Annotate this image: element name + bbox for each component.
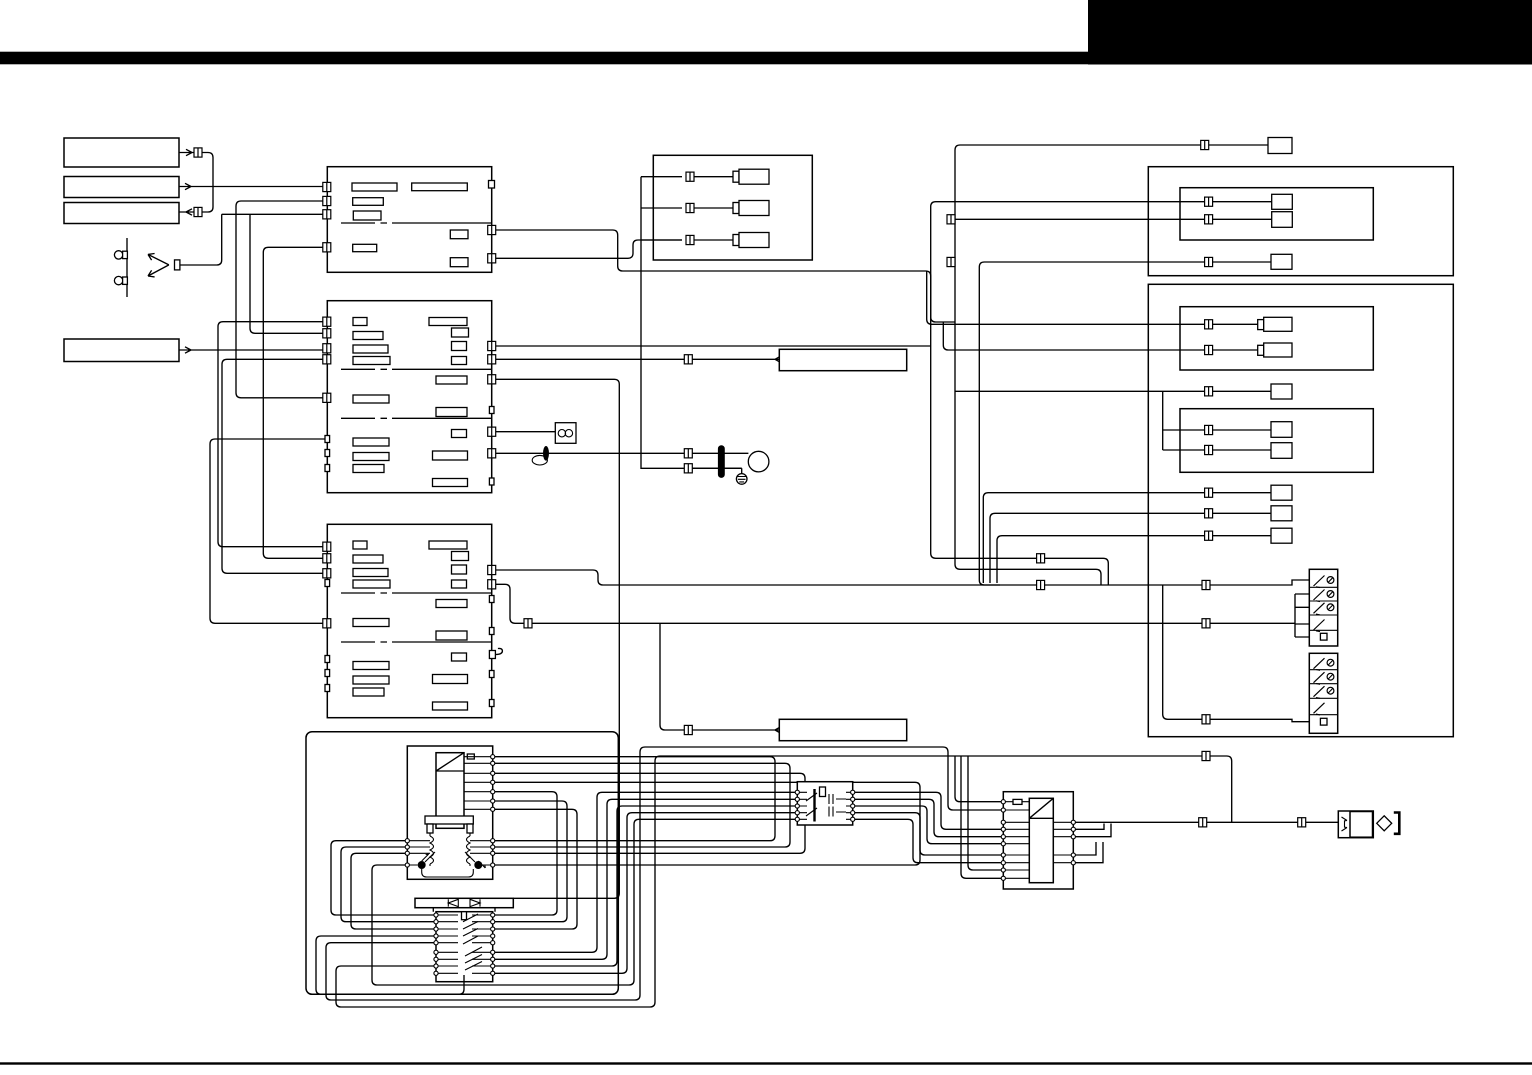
callout-box-2 [779,719,906,740]
noise-filter-icon [555,423,576,444]
circuit-board-1 [327,167,494,273]
edge-stub [325,670,330,677]
edge-stub [325,465,330,472]
junction-dot [418,861,426,869]
plug-bracket-icon [1394,813,1400,834]
antenna-symbol [114,238,179,297]
ground-icon [736,474,747,485]
ferrite-bead-icon [532,446,549,465]
relay-icon [739,169,769,184]
component-box [1264,343,1292,357]
left-source-boxes [64,138,179,362]
chip-resistor [1013,799,1022,804]
output-plug [1338,811,1399,838]
subpanel-a [1180,307,1373,370]
source-box-4 [64,339,179,362]
component-box [1271,528,1292,543]
switch-bank-1 [1309,569,1337,646]
edge-stub [325,436,330,443]
relay-icon [739,201,769,216]
component-box [1268,138,1292,154]
double-arrow-icon [148,254,169,277]
bank-terminal [1320,718,1327,725]
edge-stub [489,671,494,678]
callout-boxes [779,349,906,740]
lamp-icon [114,251,122,259]
ferrite-core-icon [718,445,725,478]
driver-ic-block [1003,792,1073,889]
junction-dot [474,861,482,869]
component-box [1271,384,1292,399]
circuit-board-3 [325,524,502,717]
subpanel-b [1180,409,1373,473]
schematic-page [0,0,1532,1075]
diode-bar [415,898,513,907]
relay-icon [739,233,769,248]
component-box [1264,317,1292,331]
edge-stub [489,628,494,635]
component-box [1271,443,1292,459]
component-box [1271,422,1292,438]
edge-stub [489,478,494,485]
page-header [0,0,1532,65]
source-box-2 [64,177,179,198]
component-box [1271,254,1292,269]
driver-ic [1029,798,1053,882]
plug-pin-icon [175,260,180,270]
edge-stub [325,685,330,692]
edge-stub [325,656,330,663]
source-box-1 [64,138,179,167]
bank-terminal [1320,633,1327,640]
component-box [1271,506,1292,521]
winding-header [425,816,473,824]
header-corner-block [1088,0,1532,65]
power-switch-block [797,782,852,825]
motor-icon [748,451,769,472]
arrow-icon [179,149,194,155]
source-box-3 [64,203,179,224]
stub-curl [495,648,502,654]
component-box [1272,194,1293,209]
arrow-icon [179,209,194,215]
right-unit-top [1148,167,1453,276]
edge-stub [489,407,494,414]
component-box [1272,212,1293,228]
circuit-board-2 [325,301,494,493]
switch-bank-2 [1309,653,1337,733]
edge-stub [489,181,495,189]
plug-diamond-icon [1377,816,1392,831]
lamp-icon [114,276,122,284]
callout-box-1 [779,349,906,370]
relay-components [733,169,769,247]
edge-stub [489,700,494,707]
footer-rule [0,1062,1532,1064]
component-box [1271,485,1292,500]
right-unit-bottom [1148,284,1453,736]
wiring-diagram-canvas [0,0,1532,1075]
edge-stub [325,450,330,457]
edge-stub [325,580,330,587]
edge-stub [489,596,494,603]
stub-connector [489,651,495,659]
